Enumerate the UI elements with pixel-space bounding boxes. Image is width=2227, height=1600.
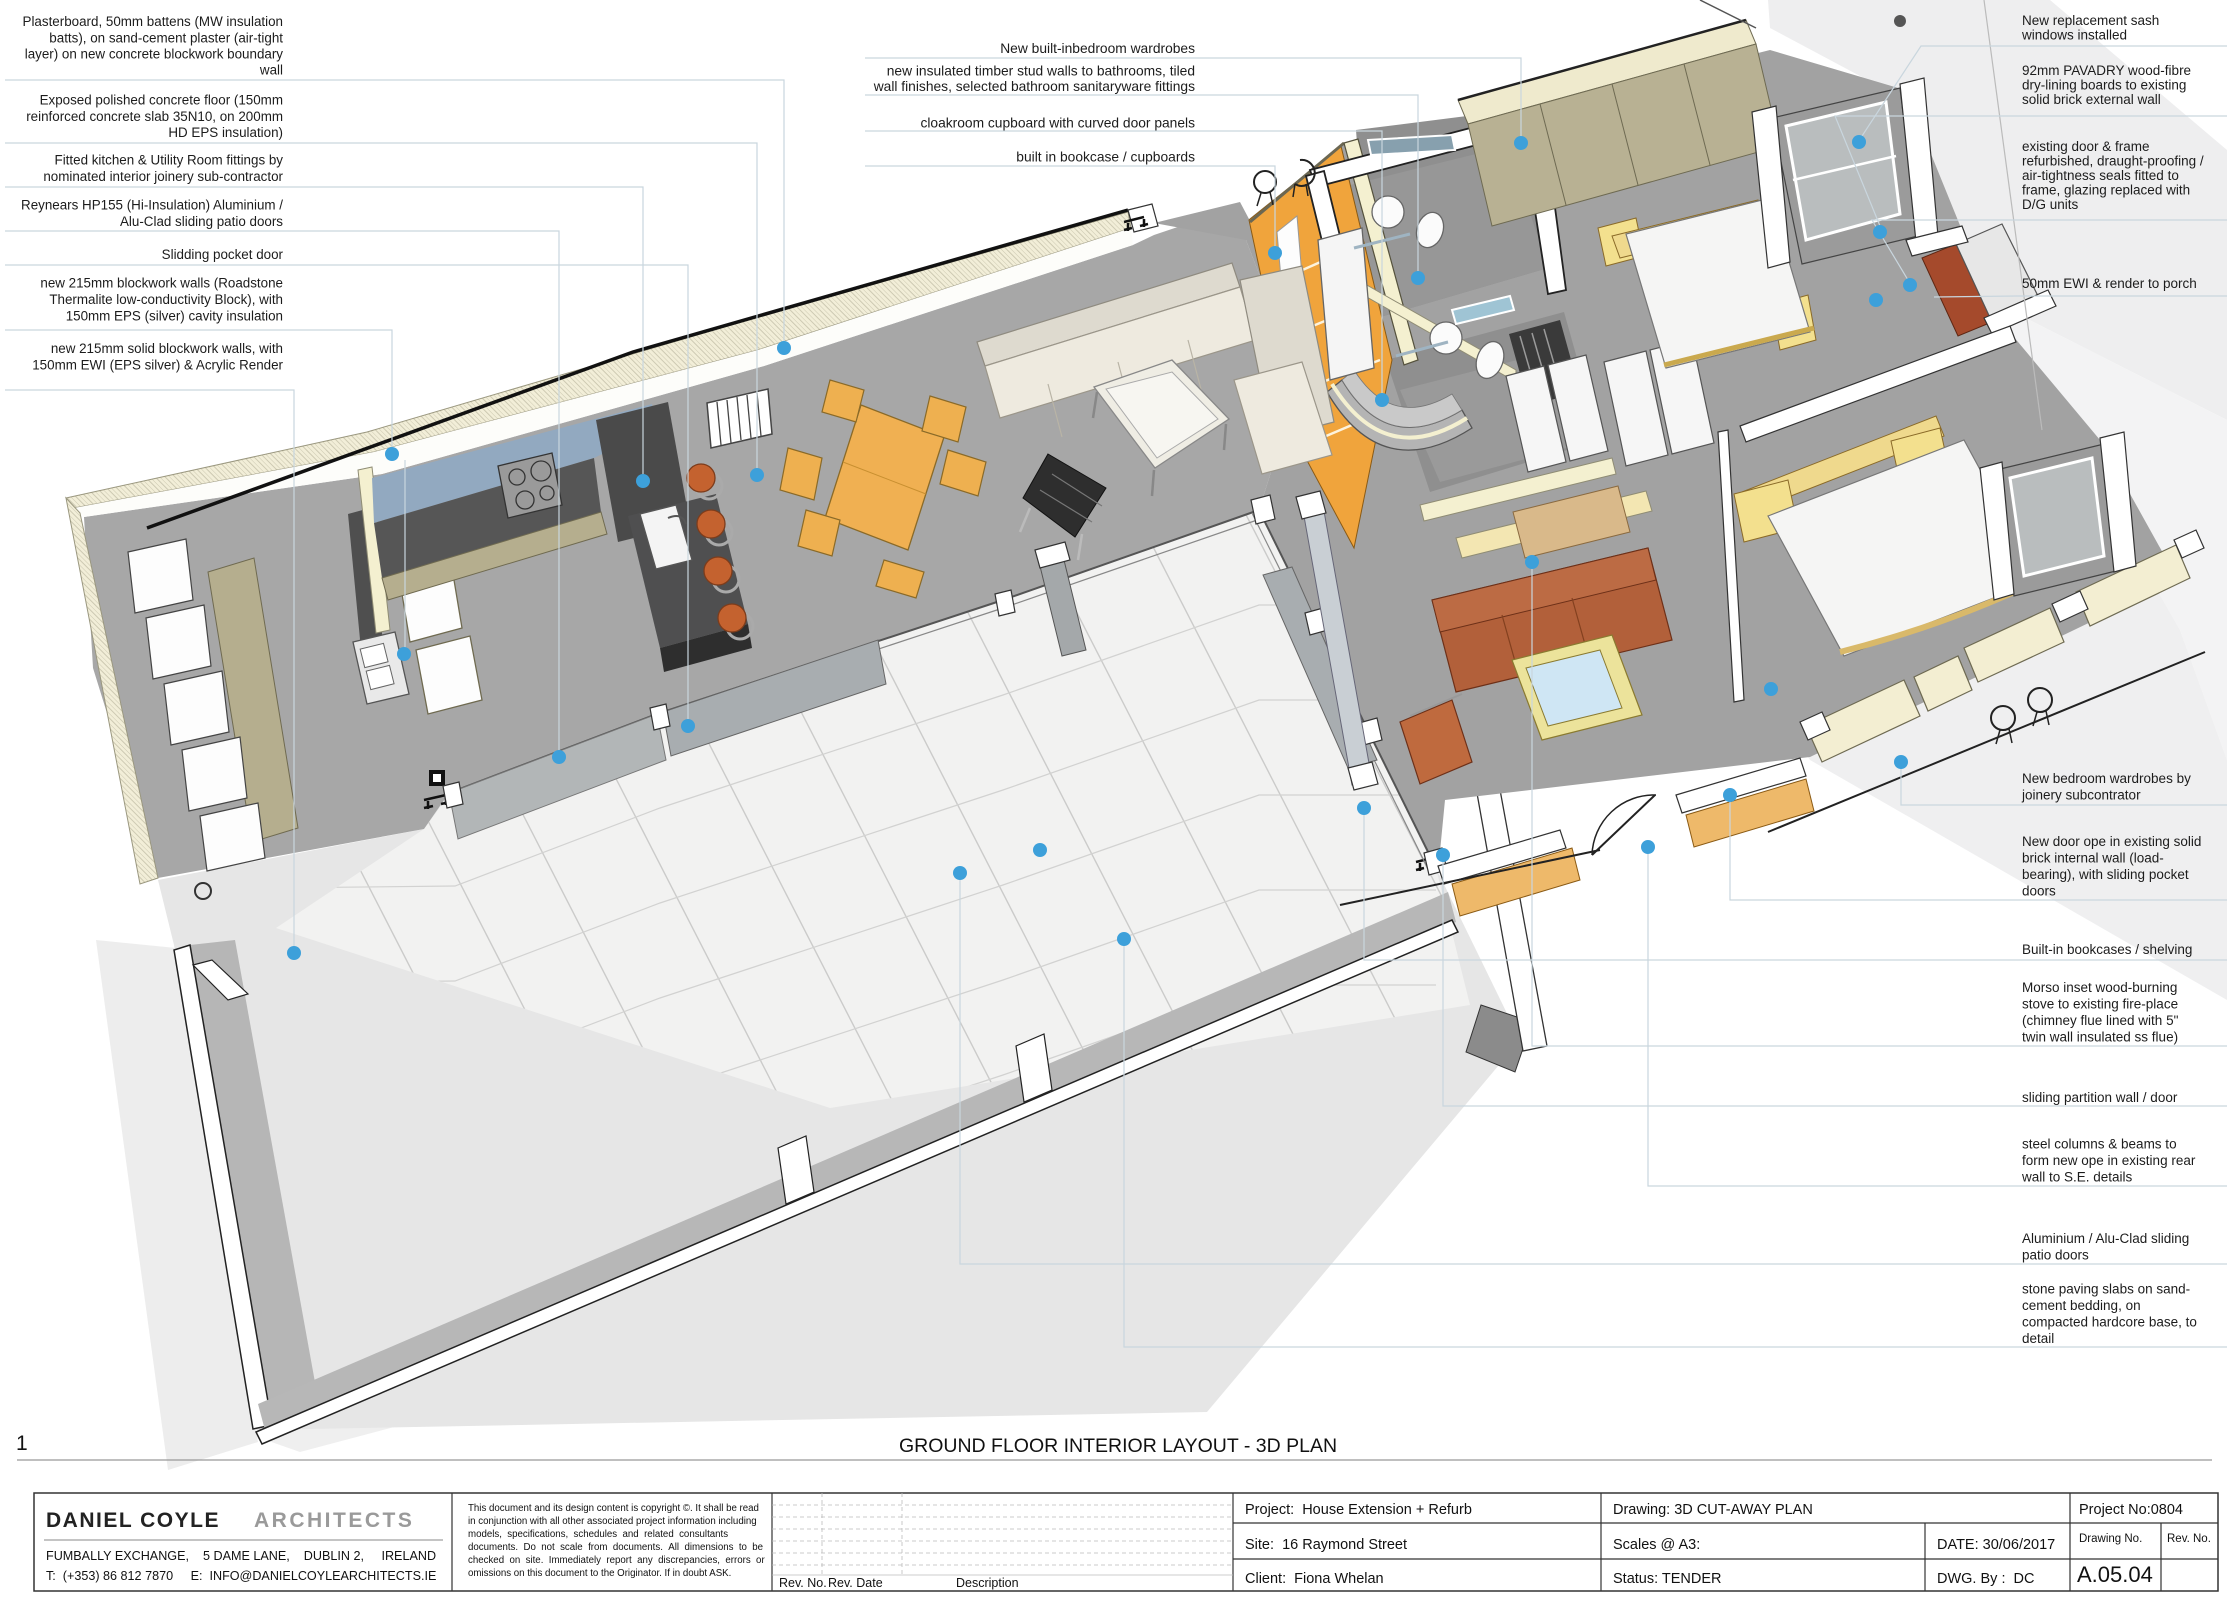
svg-text:DWG. By : DC: DWG. By : DC xyxy=(1937,1571,2034,1587)
svg-text:cement bedding, on: cement bedding, on xyxy=(2022,1298,2141,1313)
svg-text:wall to S.E. details: wall to S.E. details xyxy=(2021,1170,2133,1185)
svg-text:joinery subcontrator: joinery subcontrator xyxy=(2021,788,2141,803)
svg-text:New built-inbedroom wardrobes: New built-inbedroom wardrobes xyxy=(1000,41,1195,56)
svg-text:sliding partition wall / door: sliding partition wall / door xyxy=(2022,1090,2178,1105)
svg-text:HD EPS insulation): HD EPS insulation) xyxy=(168,125,283,140)
svg-text:patio doors: patio doors xyxy=(2022,1248,2089,1263)
svg-text:DATE: 30/06/2017: DATE: 30/06/2017 xyxy=(1937,1537,2055,1553)
svg-text:Client: Fiona Whelan: Client: Fiona Whelan xyxy=(1245,1571,1384,1587)
svg-text:Site: 16 Raymond Street: Site: 16 Raymond Street xyxy=(1245,1537,1407,1553)
svg-text:Status: TENDER: Status: TENDER xyxy=(1613,1571,1722,1587)
svg-text:Reynears HP155 (Hi-Insulation): Reynears HP155 (Hi-Insulation) Aluminium… xyxy=(21,198,283,213)
svg-text:Scales @ A3:: Scales @ A3: xyxy=(1613,1537,1700,1553)
svg-text:150mm EWI (EPS silver) & Acryl: 150mm EWI (EPS silver) & Acrylic Render xyxy=(32,358,283,373)
svg-text:layer) on new concrete blockwo: layer) on new concrete blockwork boundar… xyxy=(25,47,284,62)
svg-text:Plasterboard, 50mm battens (MW: Plasterboard, 50mm battens (MW insulatio… xyxy=(23,14,283,29)
svg-text:Fitted kitchen & Utility Room: Fitted kitchen & Utility Room fittings b… xyxy=(55,153,284,168)
svg-text:Rev. No.: Rev. No. xyxy=(779,1576,827,1590)
svg-text:Aluminium / Alu-Clad sliding: Aluminium / Alu-Clad sliding xyxy=(2022,1231,2189,1246)
svg-text:Description: Description xyxy=(956,1576,1019,1590)
svg-text:air-tightness seals fitted to: air-tightness seals fitted to xyxy=(2022,168,2179,183)
svg-text:form new ope in existing rear: form new ope in existing rear xyxy=(2022,1153,2196,1168)
svg-text:twin wall insulated ss flue): twin wall insulated ss flue) xyxy=(2022,1030,2178,1045)
svg-text:checked on site. Immediatel: checked on site. Immediately report any … xyxy=(468,1555,765,1566)
svg-text:reinforced concrete slab 35N10: reinforced concrete slab 35N10, on 200mm xyxy=(26,109,283,124)
svg-text:refurbished, draught-proofing: refurbished, draught-proofing / xyxy=(2022,154,2204,169)
svg-text:stove to existing fire-place: stove to existing fire-place xyxy=(2022,997,2178,1012)
svg-text:compacted hardcore base, to: compacted hardcore base, to xyxy=(2022,1315,2197,1330)
svg-text:Built-in bookcases / shelving: Built-in bookcases / shelving xyxy=(2022,942,2192,957)
svg-text:Slidding pocket door: Slidding pocket door xyxy=(162,247,284,262)
svg-text:batts), on sand-cement plaster: batts), on sand-cement plaster (air-tigh… xyxy=(49,30,283,45)
svg-text:stone paving slabs on sand-: stone paving slabs on sand- xyxy=(2022,1282,2190,1297)
svg-text:Rev. Date: Rev. Date xyxy=(828,1576,883,1590)
svg-text:new 215mm blockwork walls (Roa: new 215mm blockwork walls (Roadstone xyxy=(40,276,283,291)
svg-text:Rev. No.: Rev. No. xyxy=(2167,1533,2211,1545)
svg-text:documents. Do not scale fr: documents. Do not scale from documents. … xyxy=(468,1542,763,1553)
svg-text:bearing), with sliding pocket: bearing), with sliding pocket xyxy=(2022,867,2189,882)
svg-text:Alu-Clad sliding patio doors: Alu-Clad sliding patio doors xyxy=(120,214,283,229)
svg-text:Project: House Extension + Re: Project: House Extension + Refurb xyxy=(1245,1502,1472,1518)
svg-text:detail: detail xyxy=(2022,1331,2054,1346)
svg-text:nominated interior joinery sub: nominated interior joinery sub-contracto… xyxy=(43,169,283,184)
svg-text:This document and its design c: This document and its design content is … xyxy=(468,1503,759,1514)
svg-text:ARCHITECTS: ARCHITECTS xyxy=(254,1509,414,1532)
svg-text:(chimney flue lined with 5": (chimney flue lined with 5" xyxy=(2022,1013,2179,1028)
svg-text:1: 1 xyxy=(16,1432,28,1455)
svg-text:New door ope in existing solid: New door ope in existing solid xyxy=(2022,834,2201,849)
svg-text:wall finishes, selected bathro: wall finishes, selected bathroom sanitar… xyxy=(873,79,1195,94)
svg-text:Morso inset wood-burning: Morso inset wood-burning xyxy=(2022,980,2177,995)
svg-text:Drawing No.: Drawing No. xyxy=(2079,1533,2142,1545)
svg-text:D/G units: D/G units xyxy=(2022,197,2079,212)
svg-text:A.05.04: A.05.04 xyxy=(2077,1562,2153,1587)
svg-text:brick internal wall (load-: brick internal wall (load- xyxy=(2022,851,2164,866)
svg-text:150mm EPS (silver) cavity insu: 150mm EPS (silver) cavity insulation xyxy=(66,309,283,324)
svg-text:T: (+353) 86 812 7870 E:: T: (+353) 86 812 7870 E: INFO@DANIELCOYL… xyxy=(46,1569,436,1583)
svg-text:in conjunction with all other: in conjunction with all other associated… xyxy=(468,1516,757,1527)
svg-text:wall: wall xyxy=(259,63,283,78)
svg-text:built in bookcase / cupboards: built in bookcase / cupboards xyxy=(1016,150,1195,165)
svg-text:cloakroom cupboard with curved: cloakroom cupboard with curved door pane… xyxy=(920,116,1195,131)
svg-text:Drawing: 3D CUT-AWAY PLAN: Drawing: 3D CUT-AWAY PLAN xyxy=(1613,1502,1813,1518)
svg-text:windows installed: windows installed xyxy=(2021,28,2127,43)
svg-text:92mm PAVADRY wood-fibre: 92mm PAVADRY wood-fibre xyxy=(2022,63,2191,78)
svg-text:models, specifications, sche: models, specifications, schedules and re… xyxy=(468,1529,728,1540)
svg-text:New replacement sash: New replacement sash xyxy=(2022,13,2159,28)
svg-text:FUMBALLY EXCHANGE, 5 DAME L: FUMBALLY EXCHANGE, 5 DAME LANE, DUBLIN 2… xyxy=(46,1549,436,1563)
svg-text:solid brick external wall: solid brick external wall xyxy=(2022,92,2161,107)
svg-text:doors: doors xyxy=(2022,884,2056,899)
svg-text:Project No:0804: Project No:0804 xyxy=(2079,1502,2183,1518)
svg-text:steel columns & beams to: steel columns & beams to xyxy=(2022,1137,2177,1152)
svg-text:DANIEL COYLE: DANIEL COYLE xyxy=(46,1509,220,1532)
svg-text:new insulated timber stud wall: new insulated timber stud walls to bathr… xyxy=(887,64,1195,79)
svg-text:New bedroom wardrobes by: New bedroom wardrobes by xyxy=(2022,771,2191,786)
svg-text:omissions on this document to: omissions on this document to the Origin… xyxy=(468,1568,731,1579)
svg-text:Thermalite low-conductivity Bl: Thermalite low-conductivity Block), with xyxy=(49,292,283,307)
svg-text:new 215mm solid blockwork wall: new 215mm solid blockwork walls, with xyxy=(51,341,283,356)
svg-text:frame, glazing replaced with: frame, glazing replaced with xyxy=(2022,183,2190,198)
svg-text:dry-lining boards to existing: dry-lining boards to existing xyxy=(2022,78,2186,93)
svg-text:GROUND FLOOR INTERIOR LAYOUT -: GROUND FLOOR INTERIOR LAYOUT - 3D PLAN xyxy=(899,1435,1337,1457)
svg-text:existing door & frame: existing door & frame xyxy=(2022,139,2150,154)
svg-text:50mm EWI & render to porch: 50mm EWI & render to porch xyxy=(2022,276,2197,291)
svg-text:Exposed polished concrete floo: Exposed polished concrete floor (150mm xyxy=(40,93,283,108)
